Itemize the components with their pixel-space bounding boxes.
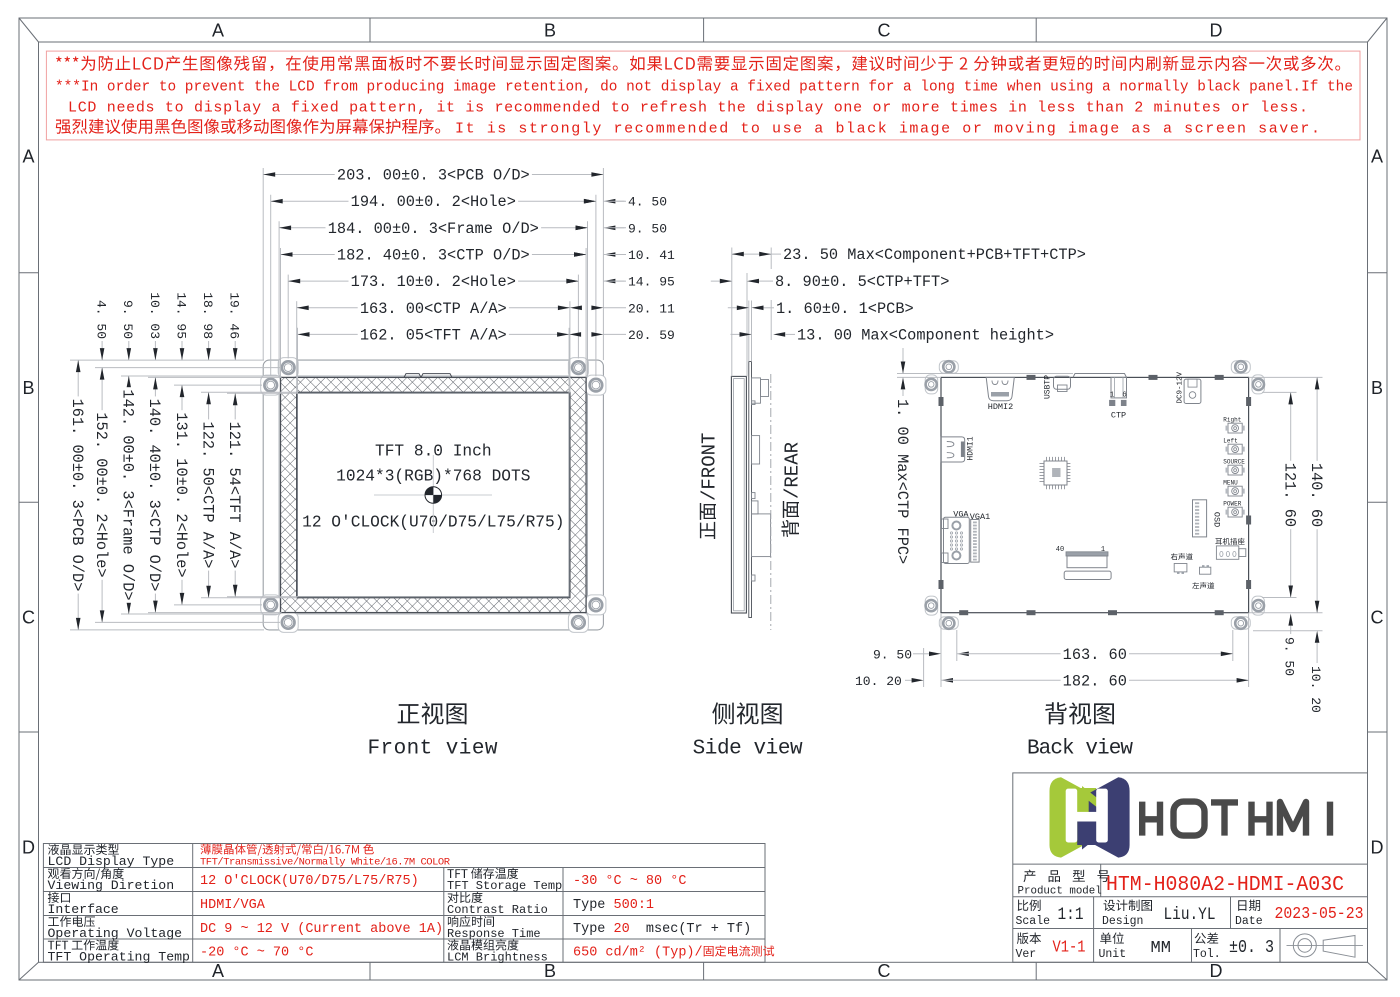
svg-text:Back view: Back view <box>1027 738 1133 761</box>
svg-text:Response Time: Response Time <box>447 927 541 941</box>
svg-text:1. 60±0. 1<PCB>: 1. 60±0. 1<PCB> <box>776 300 914 318</box>
svg-text:Scale: Scale <box>1016 915 1051 928</box>
svg-text:Tol.: Tol. <box>1193 948 1221 961</box>
svg-text:CTP: CTP <box>1111 411 1126 421</box>
svg-text:VGA: VGA <box>953 510 969 520</box>
svg-text:SOURCE: SOURCE <box>1223 459 1245 466</box>
svg-text:Product model: Product model <box>1018 886 1102 898</box>
svg-text:Side view: Side view <box>693 738 803 761</box>
svg-text:TFT Operating Temp: TFT Operating Temp <box>48 950 191 965</box>
svg-text:9. 50: 9. 50 <box>120 300 135 339</box>
svg-text:HDMI2: HDMI2 <box>988 402 1014 412</box>
svg-text:-30 °C ~ 80 °C: -30 °C ~ 80 °C <box>573 874 686 889</box>
svg-text:B: B <box>22 378 34 398</box>
svg-text:9. 50: 9. 50 <box>1282 637 1297 676</box>
svg-text:MENU: MENU <box>1223 480 1238 487</box>
svg-text:Design: Design <box>1102 915 1143 928</box>
svg-text:A: A <box>212 961 224 981</box>
svg-text:POWER: POWER <box>1223 501 1241 508</box>
svg-text:20. 59: 20. 59 <box>628 328 675 343</box>
svg-text:D: D <box>1210 961 1223 981</box>
svg-text:182. 40±0. 3<CTP O/D>: 182. 40±0. 3<CTP O/D> <box>337 247 530 265</box>
svg-text:122. 50<CTP A/A>: 122. 50<CTP A/A> <box>198 422 216 569</box>
svg-text:USBTP: USBTP <box>1044 375 1053 399</box>
svg-text:LCD Display Type: LCD Display Type <box>48 854 175 869</box>
svg-text:Type 20 msec(Tr + Tf): Type 20 msec(Tr + Tf) <box>573 922 751 937</box>
svg-text:10. 41: 10. 41 <box>628 248 675 263</box>
svg-text:8. 90±0. 5<CTP+TFT>: 8. 90±0. 5<CTP+TFT> <box>775 273 949 291</box>
svg-text:10. 20: 10. 20 <box>855 674 902 689</box>
svg-text:1:1: 1:1 <box>1058 905 1084 925</box>
svg-text:161. 00±0. 3<PCB O/D>: 161. 00±0. 3<PCB O/D> <box>68 399 86 592</box>
svg-text:Viewing Diretion: Viewing Diretion <box>48 878 175 893</box>
svg-text:4. 50: 4. 50 <box>628 195 667 210</box>
svg-text:B: B <box>544 21 556 41</box>
svg-text:Right: Right <box>1223 417 1241 424</box>
svg-text:1. 00 Max<CTP FPC>: 1. 00 Max<CTP FPC> <box>893 399 911 564</box>
svg-text:184. 00±0. 3<Frame O/D>: 184. 00±0. 3<Frame O/D> <box>328 220 539 238</box>
svg-text:±0. 3: ±0. 3 <box>1229 938 1274 958</box>
svg-text:V1-1: V1-1 <box>1053 939 1086 958</box>
svg-text:Front view: Front view <box>368 738 498 761</box>
svg-text:A: A <box>1371 147 1383 167</box>
svg-text:20. 11: 20. 11 <box>628 301 675 316</box>
svg-text:173. 10±0. 2<Hole>: 173. 10±0. 2<Hole> <box>351 273 516 291</box>
svg-text:163. 60: 163. 60 <box>1063 646 1127 664</box>
svg-text:TFT/Transmissive/Normally Whit: TFT/Transmissive/Normally White/16.7M CO… <box>200 857 451 869</box>
svg-text:1: 1 <box>1110 392 1115 400</box>
svg-text:6: 6 <box>1122 392 1127 400</box>
svg-text:C: C <box>878 21 891 41</box>
svg-text:VGA1: VGA1 <box>970 512 990 522</box>
svg-text:DC 9 ~ 12 V (Current above 1A): DC 9 ~ 12 V (Current above 1A) <box>200 922 443 937</box>
svg-text:13. 00 Max<Component height>: 13. 00 Max<Component height> <box>797 326 1054 344</box>
svg-text:40: 40 <box>1056 546 1064 554</box>
svg-text:140. 40±0. 3<CTP O/D>: 140. 40±0. 3<CTP O/D> <box>145 399 163 592</box>
svg-text:163. 00<CTP A/A>: 163. 00<CTP A/A> <box>360 300 507 318</box>
svg-text:HTM-H080A2-HDMI-A03C: HTM-H080A2-HDMI-A03C <box>1106 874 1344 897</box>
svg-text:D: D <box>1371 838 1384 858</box>
svg-text:DC9-12V: DC9-12V <box>1177 371 1185 403</box>
svg-text:4. 50: 4. 50 <box>94 300 109 339</box>
svg-text:/FRONT: /FRONT <box>699 433 721 501</box>
svg-text:9. 50: 9. 50 <box>628 221 667 236</box>
svg-text:14. 95: 14. 95 <box>628 275 675 290</box>
svg-text:650 cd/m² (Typ)/: 650 cd/m² (Typ)/ <box>573 946 703 961</box>
svg-text:10. 20: 10. 20 <box>1308 666 1323 713</box>
svg-text:140. 60: 140. 60 <box>1307 463 1325 527</box>
svg-text:Contrast Ratio: Contrast Ratio <box>447 903 548 917</box>
svg-text:203. 00±0. 3<PCB O/D>: 203. 00±0. 3<PCB O/D> <box>337 167 530 185</box>
svg-text:14. 95: 14. 95 <box>173 292 188 339</box>
svg-text:194. 00±0. 2<Hole>: 194. 00±0. 2<Hole> <box>351 193 516 211</box>
svg-text:Type 500:1: Type 500:1 <box>573 898 654 913</box>
svg-text:D: D <box>1210 21 1223 41</box>
svg-text:A: A <box>212 21 224 41</box>
svg-text:131. 10±0. 2<Hole>: 131. 10±0. 2<Hole> <box>172 412 190 577</box>
svg-text:Left: Left <box>1223 438 1237 445</box>
svg-text:MM: MM <box>1151 939 1171 958</box>
svg-text:TFT Storage Temp: TFT Storage Temp <box>447 879 562 893</box>
svg-text:152. 00±0. 2<Hole>: 152. 00±0. 2<Hole> <box>92 412 110 577</box>
svg-text:2023-05-23: 2023-05-23 <box>1275 905 1364 924</box>
svg-text:142. 00±0. 3<Frame O/D>: 142. 00±0. 3<Frame O/D> <box>119 389 137 600</box>
svg-text:121. 60: 121. 60 <box>1281 463 1299 527</box>
svg-text:182. 60: 182. 60 <box>1063 672 1127 690</box>
svg-text:It is strongly recommended to: It is strongly recommended to use a blac… <box>455 121 1320 138</box>
svg-text:HDMI1: HDMI1 <box>967 436 976 460</box>
svg-text:23. 50 Max<Component+PCB+TFT+C: 23. 50 Max<Component+PCB+TFT+CTP> <box>783 246 1086 264</box>
svg-text:18. 98: 18. 98 <box>200 292 215 339</box>
svg-text:LCM Brightness: LCM Brightness <box>447 951 548 965</box>
svg-text:C: C <box>22 608 35 628</box>
svg-text:Unit: Unit <box>1099 948 1127 961</box>
svg-text:LCD needs to display a fixed p: LCD needs to display a fixed pattern, it… <box>68 100 1308 117</box>
svg-text:OSD: OSD <box>1212 512 1222 527</box>
svg-text:Ver: Ver <box>1016 948 1037 961</box>
svg-text:121. 54<TFT A/A>: 121. 54<TFT A/A> <box>225 422 243 569</box>
svg-text:C: C <box>1371 608 1384 628</box>
svg-text:19. 46: 19. 46 <box>227 292 242 339</box>
svg-text:C: C <box>878 961 891 981</box>
svg-text:Liu.YL: Liu.YL <box>1164 905 1216 925</box>
svg-text:A: A <box>22 147 34 167</box>
svg-text:Interface: Interface <box>48 902 119 917</box>
svg-text:D: D <box>22 838 35 858</box>
svg-text:12 O'CLOCK(U70/D75/L75/R75): 12 O'CLOCK(U70/D75/L75/R75) <box>200 874 419 889</box>
svg-text:Date: Date <box>1235 915 1263 928</box>
svg-text:9. 50: 9. 50 <box>873 647 912 662</box>
svg-text:/REAR: /REAR <box>782 442 804 499</box>
svg-text:HDMI/VGA: HDMI/VGA <box>200 898 266 913</box>
svg-text:-20 °C ~ 70 °C: -20 °C ~ 70 °C <box>200 946 313 961</box>
svg-text:10. 03: 10. 03 <box>147 292 162 339</box>
svg-text:B: B <box>1371 378 1383 398</box>
svg-text:162. 05<TFT A/A>: 162. 05<TFT A/A> <box>360 326 507 344</box>
svg-text:Operating Voltage: Operating Voltage <box>48 926 183 941</box>
svg-text:***In order to prevent the LCD: ***In order to prevent the LCD from prod… <box>55 79 1353 96</box>
